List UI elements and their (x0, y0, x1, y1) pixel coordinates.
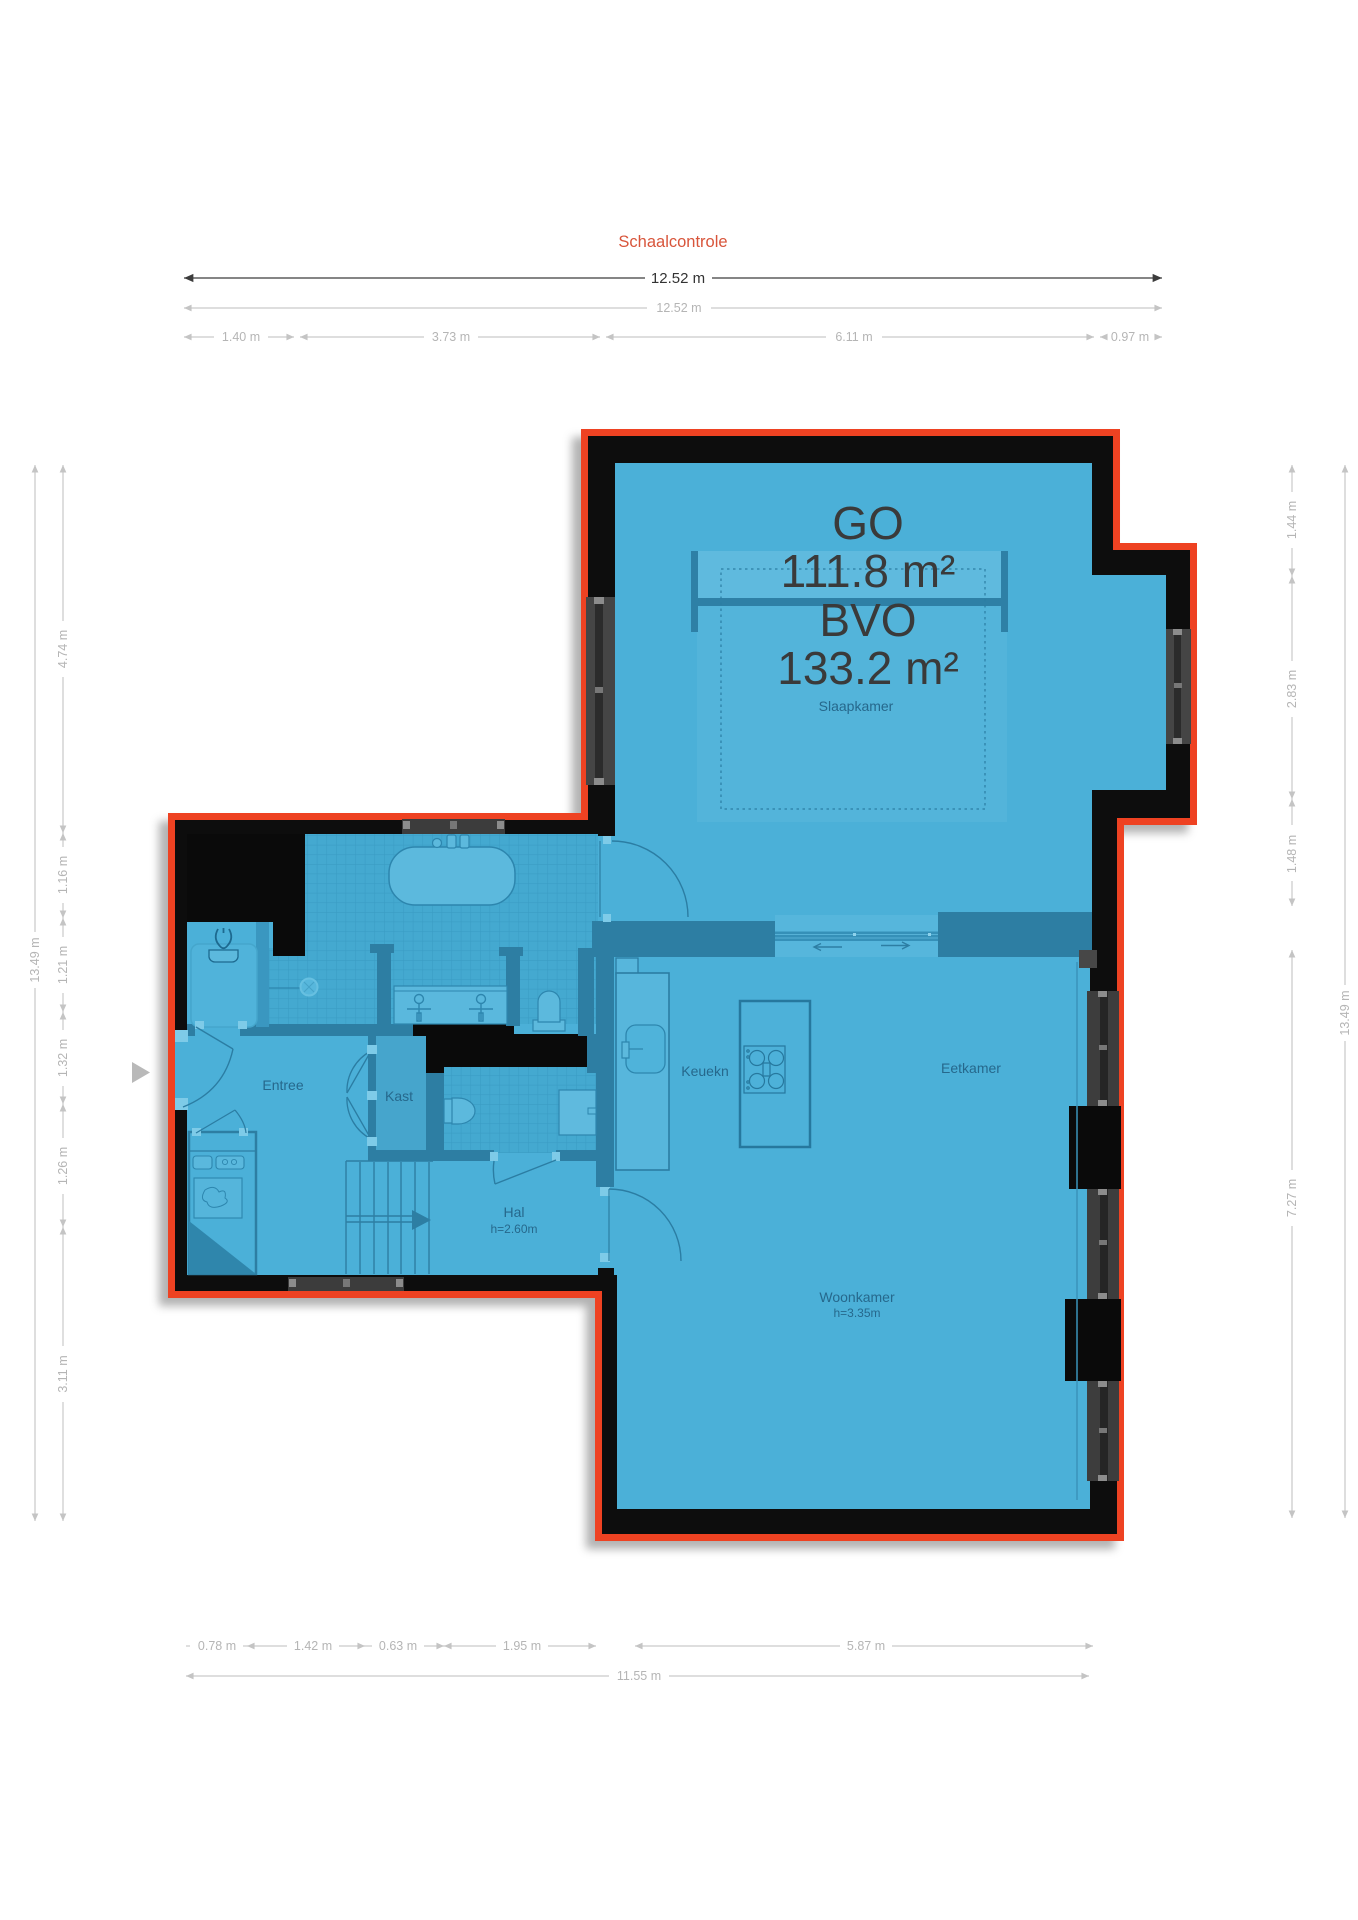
svg-text:Slaapkamer: Slaapkamer (819, 698, 894, 714)
svg-text:1.32 m: 1.32 m (56, 1039, 70, 1077)
svg-text:1.40 m: 1.40 m (222, 330, 260, 344)
svg-text:Hal: Hal (503, 1204, 524, 1220)
svg-text:3.11 m: 3.11 m (56, 1355, 70, 1392)
svg-text:Entree: Entree (262, 1077, 303, 1093)
svg-text:1.42 m: 1.42 m (294, 1639, 332, 1653)
svg-text:6.11 m: 6.11 m (835, 330, 872, 344)
svg-text:111.8 m²: 111.8 m² (781, 545, 956, 597)
svg-text:Schaalcontrole: Schaalcontrole (618, 233, 727, 251)
svg-text:2.83 m: 2.83 m (1285, 670, 1299, 708)
svg-text:Eetkamer: Eetkamer (941, 1060, 1001, 1076)
svg-text:7.27 m: 7.27 m (1285, 1179, 1299, 1217)
svg-text:GO: GO (832, 497, 904, 549)
svg-text:h=3.35m: h=3.35m (833, 1306, 880, 1320)
svg-text:12.52 m: 12.52 m (656, 301, 701, 315)
svg-text:h=2.60m: h=2.60m (490, 1222, 537, 1236)
svg-text:Woonkamer: Woonkamer (819, 1289, 895, 1305)
svg-text:11.55 m: 11.55 m (617, 1669, 661, 1683)
svg-text:BVO: BVO (819, 594, 916, 646)
svg-text:5.87 m: 5.87 m (847, 1639, 885, 1653)
svg-text:4.74 m: 4.74 m (56, 630, 70, 668)
svg-text:12.52 m: 12.52 m (651, 270, 705, 287)
svg-text:Kast: Kast (385, 1088, 413, 1104)
svg-text:13.49 m: 13.49 m (28, 937, 42, 982)
svg-text:1.16 m: 1.16 m (56, 856, 70, 894)
svg-text:13.49 m: 13.49 m (1338, 990, 1352, 1035)
svg-text:1.44 m: 1.44 m (1285, 501, 1299, 539)
svg-text:0.78 m: 0.78 m (198, 1639, 236, 1653)
svg-text:1.26 m: 1.26 m (56, 1147, 70, 1185)
svg-text:0.97 m: 0.97 m (1111, 330, 1149, 344)
svg-text:1.48 m: 1.48 m (1285, 835, 1299, 873)
svg-text:0.63 m: 0.63 m (379, 1639, 417, 1653)
svg-text:Keuekn: Keuekn (681, 1063, 728, 1079)
svg-text:133.2 m²: 133.2 m² (777, 642, 959, 694)
svg-text:1.21 m: 1.21 m (56, 946, 70, 984)
svg-text:1.95 m: 1.95 m (503, 1639, 541, 1653)
svg-text:3.73 m: 3.73 m (432, 330, 470, 344)
